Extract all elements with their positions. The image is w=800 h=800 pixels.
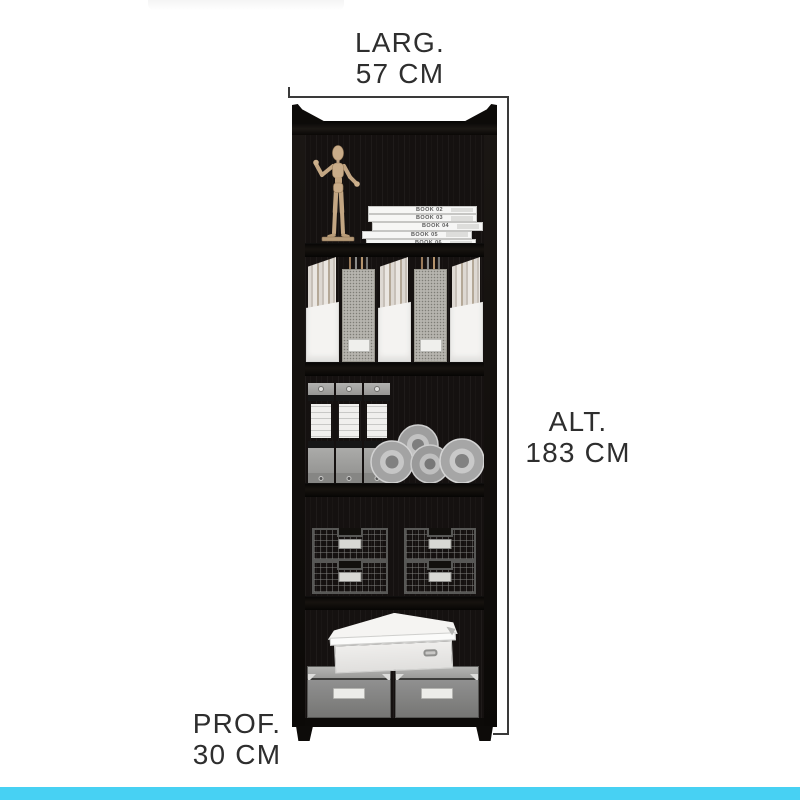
width-value: 57 CM <box>320 58 480 89</box>
box-label <box>333 688 365 699</box>
side-panel-left <box>292 121 305 727</box>
basket-notch <box>337 561 363 570</box>
accent-bar <box>0 787 800 800</box>
binder-label <box>336 401 362 441</box>
basket-notch <box>337 528 363 537</box>
basket-label <box>339 539 362 549</box>
width-label: LARG. <box>320 27 480 58</box>
gray-storage-box <box>395 666 479 718</box>
box-label <box>421 688 453 699</box>
white-lidded-box <box>327 610 459 676</box>
box-body <box>395 680 479 718</box>
foot-left <box>296 726 313 741</box>
binder-cap <box>308 383 334 395</box>
ring-binder <box>336 383 362 483</box>
wire-basket <box>312 561 388 594</box>
top-artifact <box>148 0 344 10</box>
finger-hole-icon <box>347 476 352 481</box>
book-author-patch <box>451 208 473 213</box>
foot-right <box>476 726 493 741</box>
shelf-board <box>302 483 487 497</box>
bottom-board <box>292 718 497 727</box>
height-value: 183 CM <box>518 437 638 468</box>
depth-label: PROF. <box>176 708 298 739</box>
shelf-board <box>302 362 487 376</box>
magazine-file-white <box>378 255 411 362</box>
depth-value: 30 CM <box>176 739 298 770</box>
book-author-patch <box>446 232 468 237</box>
binder-cap <box>364 383 390 395</box>
basket-label <box>429 572 452 582</box>
file-label <box>348 339 370 352</box>
side-panel-right <box>484 121 497 727</box>
book-author-patch <box>451 216 473 221</box>
book: BOOK 02 <box>368 206 477 214</box>
shelf-board <box>302 243 487 257</box>
basket-notch <box>427 528 453 537</box>
top-trim-left <box>292 104 324 123</box>
grommet-icon <box>318 386 324 392</box>
top-trim-right <box>465 104 497 123</box>
book: BOOK 03 <box>368 214 477 222</box>
file-body <box>450 300 483 362</box>
ring-binder <box>308 383 334 483</box>
file-body <box>306 300 339 362</box>
product-diagram: LARG. 57 CM ALT. 183 CM PROF. 30 CM <box>0 0 800 800</box>
basket-notch <box>427 561 453 570</box>
basket-label <box>429 539 452 549</box>
handle-hole-icon <box>423 649 437 657</box>
binder-mid <box>308 448 334 473</box>
book-title: BOOK 03 <box>416 215 443 221</box>
height-dimension-label: ALT. 183 CM <box>518 406 638 468</box>
tape-rolls <box>370 424 486 484</box>
finger-hole-icon <box>319 476 324 481</box>
width-dimension-label: LARG. 57 CM <box>320 27 480 89</box>
binder-bottom <box>336 473 362 483</box>
box-body <box>334 640 453 673</box>
book-title: BOOK 02 <box>416 207 443 213</box>
box-body <box>307 680 391 718</box>
wire-basket <box>312 528 388 561</box>
top-board <box>292 121 497 135</box>
depth-dimension-label: PROF. 30 CM <box>176 708 298 770</box>
binder-bottom <box>308 473 334 483</box>
grommet-icon <box>346 386 352 392</box>
binder-mid <box>336 448 362 473</box>
wire-basket <box>404 561 476 594</box>
binder-stripe <box>308 441 334 448</box>
height-label: ALT. <box>518 406 638 437</box>
book-title: BOOK 04 <box>422 223 449 229</box>
binder-label <box>308 401 334 441</box>
book-author-patch <box>457 224 479 229</box>
wire-basket <box>404 528 476 561</box>
book-stack: BOOK 02 BOOK 03 BOOK 04 BOOK 05 BOOK 06 <box>362 206 484 247</box>
magazine-file-white <box>450 255 483 362</box>
file-label <box>420 339 442 352</box>
book-title: BOOK 05 <box>411 232 438 238</box>
shelf-board <box>302 596 487 610</box>
file-body <box>378 300 411 362</box>
magazine-file-white <box>306 255 339 362</box>
book: BOOK 05 <box>362 231 472 239</box>
basket-label <box>339 572 362 582</box>
bookcase: BOOK 02 BOOK 03 BOOK 04 BOOK 05 BOOK 06 <box>292 104 497 746</box>
magazine-file-gray <box>414 255 447 362</box>
grommet-icon <box>374 386 380 392</box>
binder-cap <box>336 383 362 395</box>
book: BOOK 04 <box>372 222 483 230</box>
magazine-file-gray <box>342 255 375 362</box>
binder-stripe <box>336 441 362 448</box>
